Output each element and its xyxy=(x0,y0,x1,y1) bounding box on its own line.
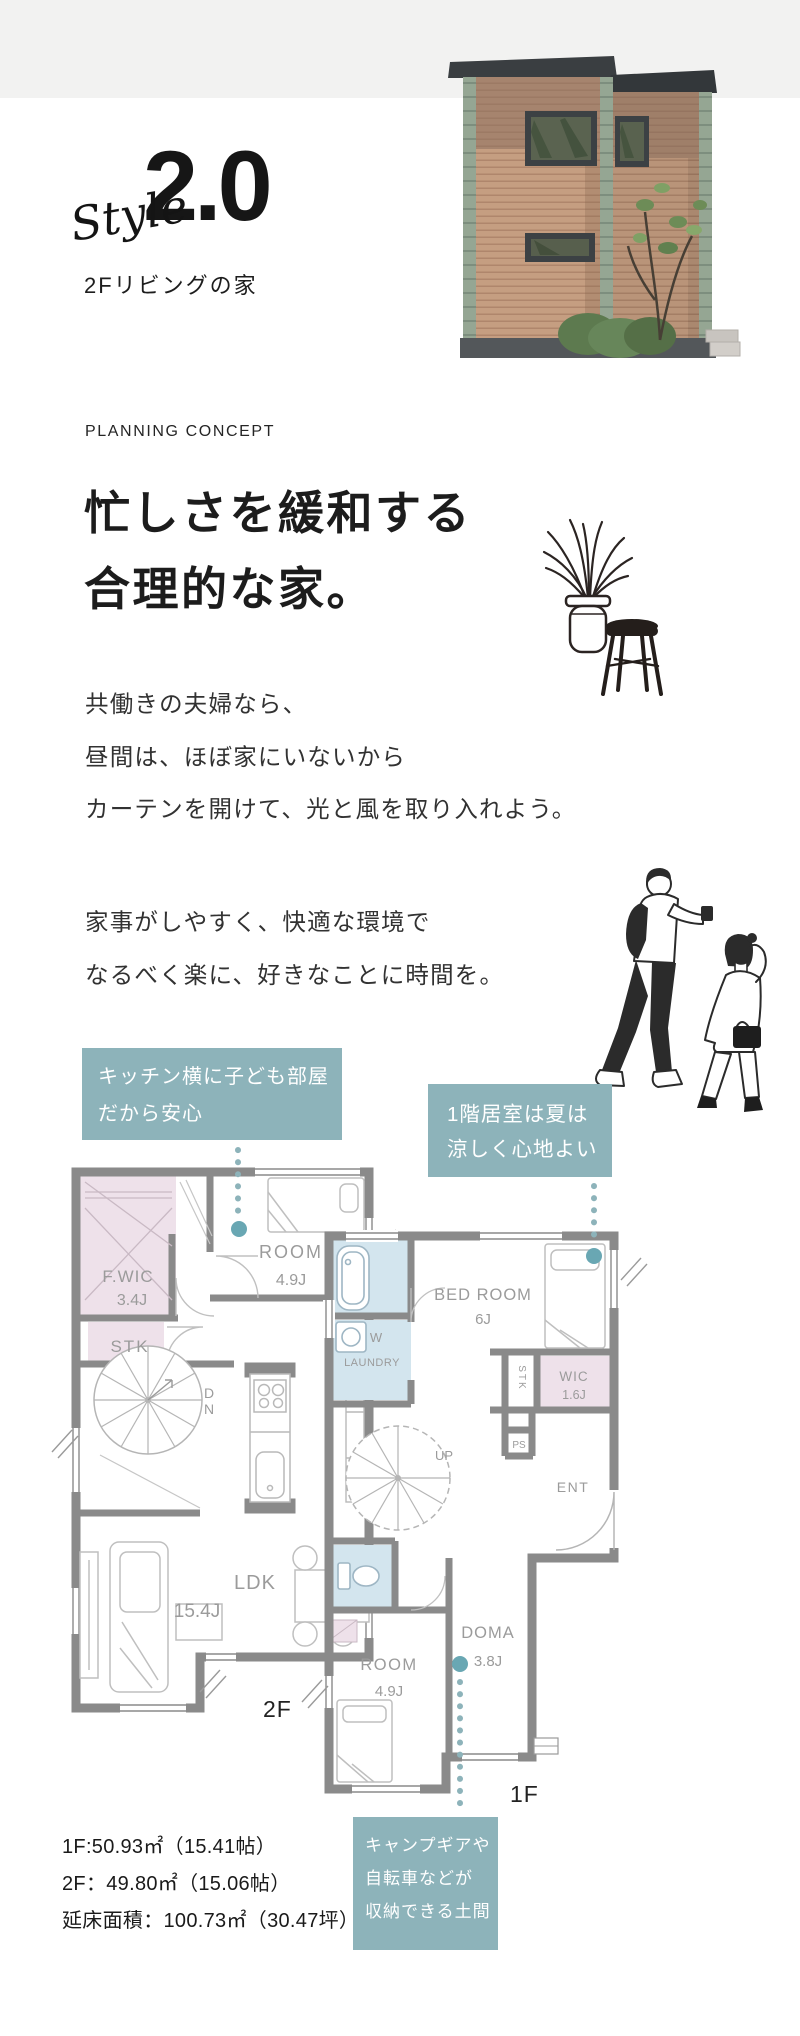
area-summary: 1F:50.93㎡（15.41帖） 2F：49.80㎡（15.06帖） 延床面積… xyxy=(62,1829,359,1940)
room-label-stk-1f: STK xyxy=(516,1365,527,1390)
room-label-fwic-size: 3.4J xyxy=(117,1292,147,1309)
room-label-doma: DOMA xyxy=(461,1624,515,1642)
room-label-wic: WIC xyxy=(559,1369,588,1384)
floor-label-1f: 1F xyxy=(510,1781,539,1808)
paragraph-line: カーテンを開けて、光と風を取り入れよう。 xyxy=(85,783,576,836)
room-label-room-1f: ROOM xyxy=(360,1656,417,1674)
planning-concept-eyebrow: PLANNING CONCEPT xyxy=(85,423,275,441)
callout-line: 涼しく心地よい xyxy=(447,1132,612,1167)
callout-line: 収納できる土間 xyxy=(365,1895,498,1928)
spiral-stair-2f xyxy=(94,1346,202,1508)
concept-heading-line1: 忙しさを緩和する xyxy=(84,490,472,536)
area-line-total: 延床面積：100.73㎡（30.47坪） xyxy=(62,1903,359,1940)
callout-first-floor: 1階居室は夏は 涼しく心地よい xyxy=(428,1084,612,1177)
concept-paragraph-2: 家事がしやすく、快適な環境で なるべく楽に、好きなことに時間を。 xyxy=(85,896,504,1001)
area-line-2f: 2F：49.80㎡（15.06帖） xyxy=(62,1866,359,1903)
room-label-w: W xyxy=(370,1330,383,1345)
callout-line: 自転車などが xyxy=(365,1862,498,1895)
room-label-ps: PS xyxy=(512,1440,526,1451)
room-label-doma-size: 3.8J xyxy=(474,1653,502,1670)
stair-label-dn2: N xyxy=(204,1401,214,1417)
callout-line: 1階居室は夏は xyxy=(447,1097,612,1132)
artwork-layer: F.WIC 3.4J STK ROOM 4.9J D N LDK 15.4J xyxy=(0,0,800,2036)
callout-doma: キャンプギアや 自転車などが 収納できる土間 xyxy=(353,1817,498,1950)
floor-label-2f: 2F xyxy=(263,1696,292,1723)
couple-illustration xyxy=(596,868,766,1112)
room-label-laundry: LAUNDRY xyxy=(344,1357,400,1369)
page: F.WIC 3.4J STK ROOM 4.9J D N LDK 15.4J xyxy=(0,0,800,2036)
stair-label-dn: D xyxy=(204,1385,214,1401)
room-label-stk-2f: STK xyxy=(110,1337,149,1356)
brand-subtitle: 2Fリビングの家 xyxy=(84,268,258,300)
plant-stool-illustration xyxy=(544,520,661,694)
room-label-room-1f-size: 4.9J xyxy=(375,1683,403,1700)
callout-line: キッチン横に子ども部屋 xyxy=(98,1059,342,1096)
callout-line: だから安心 xyxy=(98,1096,342,1133)
stair-label-up: UP xyxy=(435,1448,453,1463)
room-label-ldk: LDK xyxy=(234,1572,276,1594)
paragraph-line: なるべく楽に、好きなことに時間を。 xyxy=(85,949,504,1002)
room-label-ldk-size: 15.4J xyxy=(174,1601,220,1622)
room-label-ent: ENT xyxy=(557,1479,590,1495)
room-label-bedroom: BED ROOM xyxy=(434,1286,532,1304)
paragraph-line: 昼間は、ほぼ家にいないから xyxy=(85,731,576,784)
house-photo xyxy=(448,56,740,358)
room-label-bedroom-size: 6J xyxy=(475,1311,491,1328)
callout-line: キャンプギアや xyxy=(365,1829,498,1862)
concept-heading-line2: 合理的な家。 xyxy=(84,566,375,612)
paragraph-line: 共働きの夫婦なら、 xyxy=(85,678,576,731)
spiral-stair-1f xyxy=(346,1426,450,1530)
concept-paragraph-1: 共働きの夫婦なら、 昼間は、ほぼ家にいないから カーテンを開けて、光と風を取り入… xyxy=(85,678,576,836)
leader-dot-bedroom xyxy=(586,1248,602,1264)
room-label-room-2f: ROOM xyxy=(259,1242,323,1262)
stool-icon xyxy=(603,619,661,694)
room-label-wic-size: 1.6J xyxy=(562,1388,586,1402)
room-label-fwic: F.WIC xyxy=(102,1267,153,1286)
area-line-1f: 1F:50.93㎡（15.41帖） xyxy=(62,1829,359,1866)
leader-dot-kitchen xyxy=(231,1221,247,1237)
callout-kitchen: キッチン横に子ども部屋 だから安心 xyxy=(82,1048,342,1140)
room-label-room-2f-size: 4.9J xyxy=(276,1272,306,1289)
paragraph-line: 家事がしやすく、快適な環境で xyxy=(85,896,504,949)
leader-dot-doma xyxy=(452,1656,468,1672)
